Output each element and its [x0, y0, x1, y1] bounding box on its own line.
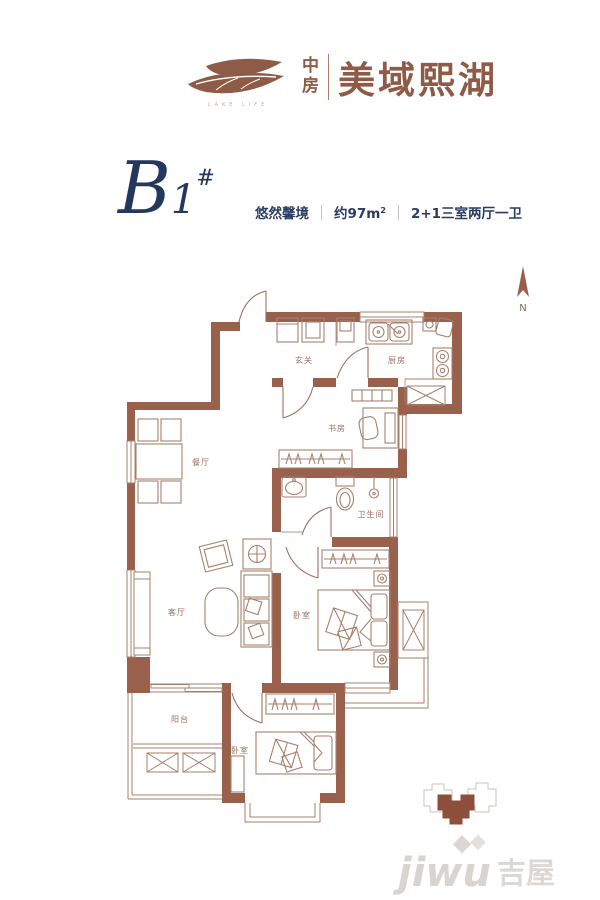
watermark-cn: 吉屋 — [497, 856, 555, 890]
dining-table — [136, 444, 182, 479]
desk — [363, 408, 398, 448]
watermark-latin: jiwu — [392, 850, 491, 896]
toilet-tank — [336, 477, 354, 486]
room-label-bedroom2: 卧室 — [231, 745, 249, 755]
bedroom2-furniture — [231, 694, 336, 792]
stove — [433, 348, 452, 379]
room-labels: 玄关 厨房 书房 餐厅 卫生间 客厅 卧室 卧室 阳台 — [168, 355, 406, 755]
room-label-study: 书房 — [328, 423, 346, 433]
room-label-balcony: 阳台 — [171, 714, 189, 724]
shower-head — [370, 489, 379, 498]
desk-chair — [358, 416, 379, 441]
master-bed — [318, 590, 390, 650]
living-furniture — [199, 539, 272, 647]
highlighted-building — [438, 795, 474, 824]
room-label-kitchen: 厨房 — [388, 355, 406, 365]
watermark: jiwu 吉屋 — [392, 835, 555, 896]
sliding-door-panel — [185, 688, 222, 692]
north-arrow: N — [517, 266, 529, 314]
room-label-master: 卧室 — [293, 610, 311, 620]
coffee-table — [205, 588, 238, 636]
key-plan — [424, 783, 496, 824]
room-label-dining: 餐厅 — [192, 458, 210, 467]
bathroom-fixtures — [282, 477, 379, 510]
toilet-bowl — [337, 488, 354, 510]
room-label-entry: 玄关 — [295, 355, 313, 365]
master-bedroom-furniture — [318, 550, 390, 667]
dining-furniture — [136, 419, 182, 503]
room-label-bath: 卫生间 — [358, 509, 385, 519]
floorplan-page: LAKE LIFE 中 房 美域熙湖 B1# 悠然馨境 约97m2 2+1三室两… — [0, 0, 600, 900]
sliding-door-panel — [151, 685, 189, 689]
north-label: N — [519, 303, 526, 314]
room-label-living: 客厅 — [168, 607, 186, 617]
balcony-glazing — [128, 684, 222, 799]
bedroom2-desk — [231, 756, 244, 792]
floor-plan: 玄关 厨房 书房 餐厅 卫生间 客厅 卧室 卧室 阳台 N jiwu 吉屋 — [0, 0, 600, 900]
